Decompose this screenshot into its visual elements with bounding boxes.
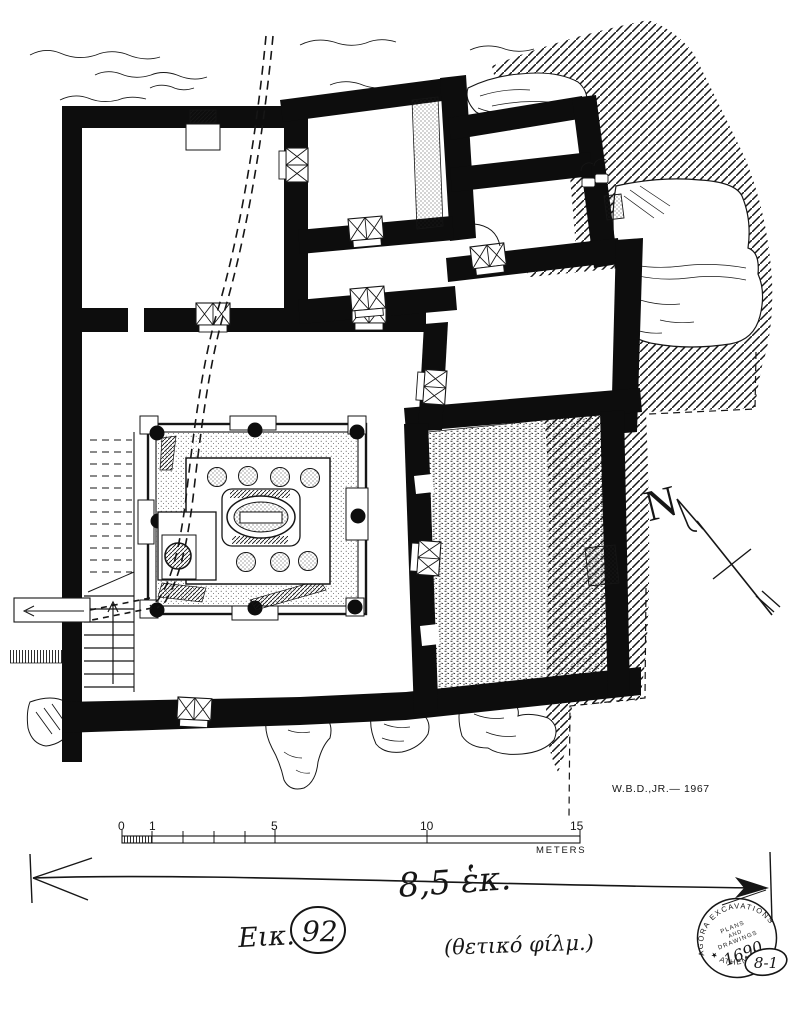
north-wall-niche: [186, 124, 220, 150]
archive-stamp: AGORA EXCAVATIONS ★ ATHENS ★ PLANS AND D…: [682, 885, 792, 991]
figure-number: 92: [302, 915, 338, 948]
scale-tick-5: 5: [271, 819, 278, 833]
draughtsman-credit: W.B.D.,JR.— 1967: [612, 783, 710, 795]
figure-caption: Εικ. 92 (θετικό φίλμ.): [236, 907, 594, 960]
catalog-note-text: 8-1: [754, 954, 778, 972]
scale-tick-0: 0: [118, 819, 125, 833]
cobbled-floor-room: [428, 414, 612, 710]
southwest-annex: [158, 512, 216, 580]
floor-plan-svg: N 0 1 5 10 15 METERS W.B.D.,JR.— 1967 8,…: [0, 0, 796, 1024]
toothed-strip: [10, 650, 64, 663]
figure-caption-prefix: Εικ.: [236, 920, 295, 954]
stippled-threshold-block: [604, 194, 624, 220]
scale-bar: 0 1 5 10 15 METERS: [118, 819, 586, 856]
scale-tick-1: 1: [149, 819, 156, 833]
dimension-note: 8,5 ἑκ.: [397, 858, 512, 905]
drawing-sheet: N 0 1 5 10 15 METERS W.B.D.,JR.— 1967 8,…: [0, 0, 796, 1024]
north-arrow: N: [639, 476, 780, 615]
pier-block: [585, 545, 619, 586]
basin-circle: [165, 543, 191, 569]
scale-unit-label: METERS: [536, 845, 586, 856]
scale-tick-15: 15: [570, 819, 584, 833]
film-note: (θετικό φίλμ.): [444, 930, 595, 959]
dimension-arrow: 8,5 ἑκ.: [30, 852, 772, 922]
north-arrowhead: [677, 499, 703, 531]
scale-tick-10: 10: [420, 819, 434, 833]
central-mosaic-feature: [222, 489, 300, 546]
